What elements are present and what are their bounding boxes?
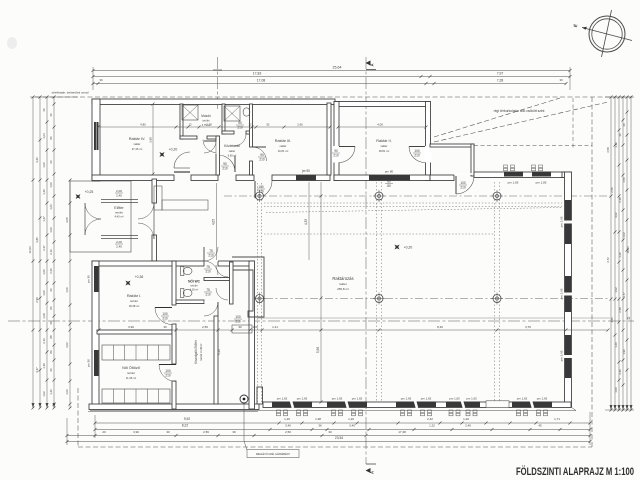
svg-text:7,28: 7,28 <box>497 79 504 83</box>
svg-text:FÖLDSZINTI ALAPRAJZ M 1:100: FÖLDSZINTI ALAPRAJZ M 1:100 <box>516 465 634 478</box>
svg-text:2,18: 2,18 <box>206 123 212 127</box>
svg-text:1,20: 1,20 <box>463 417 469 421</box>
svg-text:90: 90 <box>260 153 264 157</box>
svg-text:pm 1,65: pm 1,65 <box>332 397 343 401</box>
svg-text:18,38 m²: 18,38 m² <box>129 304 140 308</box>
svg-text:1,20: 1,20 <box>284 417 290 421</box>
svg-text:92: 92 <box>266 123 270 127</box>
svg-text:1,90: 1,90 <box>622 349 626 355</box>
svg-text:210: 210 <box>259 157 265 161</box>
svg-text:Mosdó: Mosdó <box>201 114 211 118</box>
svg-text:3,02: 3,02 <box>65 342 69 348</box>
svg-text:+0,20: +0,20 <box>404 246 413 250</box>
svg-text:5,26: 5,26 <box>217 349 221 355</box>
svg-text:90: 90 <box>334 149 338 153</box>
svg-text:10,81 m²: 10,81 m² <box>278 149 289 153</box>
svg-text:4,40 m²: 4,40 m² <box>114 215 123 219</box>
svg-text:2,48: 2,48 <box>618 307 622 313</box>
svg-text:1,50: 1,50 <box>622 177 626 183</box>
svg-text:pm 1,85: pm 1,85 <box>508 181 519 185</box>
svg-text:Női Öltöző: Női Öltöző <box>122 366 140 370</box>
svg-text:18,93: 18,93 <box>626 246 630 253</box>
svg-text:210: 210 <box>205 292 211 296</box>
svg-text:1,02: 1,02 <box>622 232 626 238</box>
svg-text:60: 60 <box>49 160 53 164</box>
svg-text:210: 210 <box>165 373 171 377</box>
svg-text:1,71: 1,71 <box>554 417 560 421</box>
svg-text:3,37: 3,37 <box>35 367 39 373</box>
svg-text:pm 1,65: pm 1,65 <box>449 397 460 401</box>
svg-text:Raktár II.: Raktár II. <box>376 139 391 143</box>
svg-text:7,97: 7,97 <box>497 72 504 76</box>
svg-text:90: 90 <box>223 162 227 166</box>
svg-text:terület 14,06 m²: terület 14,06 m² <box>200 343 203 360</box>
svg-text:1,02: 1,02 <box>614 287 618 293</box>
svg-text:terület: terület <box>127 371 135 375</box>
svg-text:265,8 m²: 265,8 m² <box>337 287 349 291</box>
svg-text:3,40: 3,40 <box>349 424 355 428</box>
svg-text:210: 210 <box>237 125 243 129</box>
svg-text:30: 30 <box>618 133 622 137</box>
svg-text:75: 75 <box>209 249 213 253</box>
svg-text:100: 100 <box>460 181 466 185</box>
svg-text:Előtér: Előtér <box>114 206 124 210</box>
svg-text:30: 30 <box>49 113 53 117</box>
svg-text:1,00: 1,00 <box>49 182 53 188</box>
svg-text:1,77: 1,77 <box>622 292 626 298</box>
svg-text:pm 3,65: pm 3,65 <box>560 288 564 299</box>
svg-text:4,35: 4,35 <box>304 219 308 225</box>
svg-text:2,30: 2,30 <box>49 268 53 274</box>
svg-text:A: A <box>370 471 375 474</box>
svg-text:régi térburkolaton álló csököt: régi térburkolaton álló csökött szint <box>494 109 545 113</box>
svg-text:4,05: 4,05 <box>65 217 69 223</box>
svg-text:210: 210 <box>460 185 466 189</box>
svg-text:210: 210 <box>222 166 228 170</box>
svg-text:100: 100 <box>235 315 241 319</box>
svg-text:80: 80 <box>49 136 53 140</box>
svg-text:2,66: 2,66 <box>297 123 303 127</box>
svg-text:30: 30 <box>559 78 563 82</box>
svg-text:terület: terület <box>115 211 123 215</box>
svg-text:NŐI WC: NŐI WC <box>188 279 201 284</box>
svg-text:2,16: 2,16 <box>42 338 46 344</box>
svg-text:210: 210 <box>333 153 339 157</box>
svg-text:4,02: 4,02 <box>614 212 618 218</box>
svg-text:3,70: 3,70 <box>525 325 531 329</box>
svg-text:80: 80 <box>387 180 391 184</box>
svg-text:75: 75 <box>206 265 210 269</box>
svg-text:30: 30 <box>232 430 236 434</box>
svg-text:1,00: 1,00 <box>49 227 53 233</box>
svg-text:1,98: 1,98 <box>315 417 321 421</box>
svg-text:1,00: 1,00 <box>42 290 46 296</box>
svg-text:MEGLÉVŐ ACÉL GÁZKÉMÉNY: MEGLÉVŐ ACÉL GÁZKÉMÉNY <box>256 453 291 456</box>
svg-text:3,90: 3,90 <box>128 325 134 329</box>
svg-text:30: 30 <box>163 325 167 329</box>
svg-text:2,37: 2,37 <box>42 245 46 251</box>
svg-text:pm 1,65: pm 1,65 <box>297 397 308 401</box>
svg-text:3,72: 3,72 <box>606 257 610 263</box>
svg-text:4,40: 4,40 <box>35 157 39 163</box>
svg-text:1,20: 1,20 <box>618 252 622 258</box>
svg-text:D: D <box>626 316 631 319</box>
svg-text:36: 36 <box>318 424 322 428</box>
svg-text:17,38: 17,38 <box>398 430 406 434</box>
svg-text:raktér: raktér <box>229 150 236 153</box>
svg-text:88: 88 <box>49 335 53 339</box>
svg-text:5,56: 5,56 <box>316 347 320 353</box>
svg-text:Raktározás: Raktározás <box>332 276 353 281</box>
svg-text:pm 90: pm 90 <box>87 275 91 283</box>
svg-text:1,00: 1,00 <box>42 162 46 168</box>
svg-text:1,22: 1,22 <box>429 424 435 428</box>
svg-text:2,16: 2,16 <box>49 249 53 255</box>
svg-text:1,42: 1,42 <box>49 389 53 395</box>
svg-text:25,64: 25,64 <box>333 66 342 70</box>
svg-text:210: 210 <box>205 269 211 273</box>
svg-text:2,40: 2,40 <box>618 369 622 375</box>
svg-text:pm 1,65: pm 1,65 <box>352 397 363 401</box>
svg-text:23,54: 23,54 <box>335 436 343 440</box>
svg-text:terület: terület <box>191 285 198 288</box>
svg-text:2,40: 2,40 <box>116 244 122 248</box>
svg-text:1,02: 1,02 <box>65 389 69 395</box>
svg-text:4,00: 4,00 <box>377 123 383 127</box>
svg-text:11,36 m²: 11,36 m² <box>126 376 137 380</box>
svg-text:pm 90: pm 90 <box>87 359 91 367</box>
svg-text:2,40: 2,40 <box>116 193 122 197</box>
svg-text:2,56: 2,56 <box>203 430 209 434</box>
svg-text:2,56: 2,56 <box>610 187 614 193</box>
svg-text:80: 80 <box>49 350 53 354</box>
svg-text:8,22: 8,22 <box>182 424 189 428</box>
svg-text:pm 3,65: pm 3,65 <box>560 350 564 361</box>
svg-text:45: 45 <box>538 424 542 428</box>
svg-text:1,50: 1,50 <box>610 317 614 323</box>
svg-text:pm 1,65: pm 1,65 <box>537 397 548 401</box>
svg-text:6,65 m²: 6,65 m² <box>228 155 237 158</box>
svg-text:18,81 m²: 18,81 m² <box>379 149 390 153</box>
svg-text:raktér: raktér <box>280 144 287 148</box>
svg-text:+0,36: +0,36 <box>135 275 144 279</box>
svg-text:3,80: 3,80 <box>149 137 153 143</box>
svg-text:8,40: 8,40 <box>437 325 443 329</box>
svg-text:100: 100 <box>414 149 420 153</box>
svg-text:1,00: 1,00 <box>42 269 46 275</box>
svg-text:100: 100 <box>165 369 171 373</box>
svg-text:raktér: raktér <box>134 142 141 146</box>
svg-text:1,00: 1,00 <box>65 287 69 293</box>
svg-text:Raktár IV.: Raktár IV. <box>129 137 146 141</box>
svg-text:100: 100 <box>258 185 264 189</box>
svg-text:Közlekedő: Közlekedő <box>224 144 240 148</box>
svg-text:Raktár I.: Raktár I. <box>127 294 141 298</box>
svg-text:30: 30 <box>99 78 103 82</box>
svg-text:pm 1,85: pm 1,85 <box>536 181 547 185</box>
svg-text:1,06: 1,06 <box>614 387 618 393</box>
svg-text:210: 210 <box>235 319 241 323</box>
svg-text:20: 20 <box>102 430 106 434</box>
svg-text:telekhatár, belterületi vonal: telekhatár, belterületi vonal <box>52 91 89 95</box>
svg-text:3,40: 3,40 <box>285 424 291 428</box>
svg-text:75: 75 <box>206 288 210 292</box>
svg-text:30: 30 <box>328 430 332 434</box>
svg-text:17,83: 17,83 <box>253 72 262 76</box>
svg-text:1,20: 1,20 <box>614 342 618 348</box>
svg-text:210: 210 <box>208 253 214 257</box>
svg-text:3,80: 3,80 <box>35 237 39 243</box>
svg-text:30: 30 <box>49 368 53 372</box>
svg-text:pm 1,65: pm 1,65 <box>401 397 412 401</box>
svg-text:210: 210 <box>162 316 168 320</box>
svg-text:pm 1,65: pm 1,65 <box>421 397 432 401</box>
svg-text:2,42: 2,42 <box>427 417 433 421</box>
svg-text:1,16: 1,16 <box>614 142 618 148</box>
svg-text:210: 210 <box>414 153 420 157</box>
svg-text:9,92: 9,92 <box>184 417 191 421</box>
svg-text:80: 80 <box>49 306 53 310</box>
svg-text:30: 30 <box>622 123 626 127</box>
svg-text:16,93: 16,93 <box>28 246 32 253</box>
svg-text:pm 80: pm 80 <box>385 170 394 174</box>
svg-text:3,58: 3,58 <box>606 147 610 153</box>
svg-text:1,38: 1,38 <box>42 363 46 369</box>
svg-text:2,56: 2,56 <box>202 325 208 329</box>
svg-text:Kiszolgáló Előtér: Kiszolgáló Előtér <box>194 339 198 364</box>
svg-text:2,00: 2,00 <box>116 240 122 244</box>
svg-text:2,38: 2,38 <box>618 197 622 203</box>
svg-text:1,08: 1,08 <box>42 313 46 319</box>
svg-text:4,38 m²: 4,38 m² <box>190 289 199 292</box>
svg-text:1,41: 1,41 <box>272 325 278 329</box>
svg-text:2,99: 2,99 <box>35 297 39 303</box>
svg-text:100: 100 <box>252 325 257 329</box>
svg-text:1,40: 1,40 <box>42 189 46 195</box>
svg-text:30: 30 <box>238 325 242 329</box>
svg-text:1,20: 1,20 <box>348 417 354 421</box>
svg-text:80: 80 <box>387 184 391 188</box>
svg-text:100: 100 <box>162 312 168 316</box>
svg-text:+0,25: +0,25 <box>85 190 94 194</box>
svg-text:Raktár III.: Raktár III. <box>275 139 291 143</box>
svg-text:30: 30 <box>49 321 53 325</box>
svg-text:12: 12 <box>248 123 252 127</box>
svg-text:jm 90: jm 90 <box>301 169 310 173</box>
svg-text:3,90: 3,90 <box>133 430 139 434</box>
svg-text:17,08: 17,08 <box>257 79 266 83</box>
svg-text:1,03: 1,03 <box>42 133 46 139</box>
svg-text:4,80: 4,80 <box>140 123 146 127</box>
svg-text:30: 30 <box>166 430 170 434</box>
svg-text:raktér: raktér <box>339 282 347 286</box>
svg-text:90: 90 <box>238 121 242 125</box>
svg-text:30: 30 <box>42 108 46 112</box>
svg-text:raktér: raktér <box>381 144 388 148</box>
svg-text:2,00: 2,00 <box>116 189 122 193</box>
svg-text:2,40: 2,40 <box>465 424 471 428</box>
svg-text:27,46 m²: 27,46 m² <box>132 147 143 151</box>
svg-text:pm 1,65: pm 1,65 <box>517 397 528 401</box>
svg-text:+0,20: +0,20 <box>169 148 178 152</box>
svg-text:pm 3,65: pm 3,65 <box>560 216 564 227</box>
svg-text:A: A <box>370 63 375 66</box>
svg-text:2,50: 2,50 <box>285 430 291 434</box>
svg-text:4,05: 4,05 <box>212 219 216 225</box>
svg-text:pm 1,65: pm 1,65 <box>277 397 288 401</box>
svg-text:terület: terület <box>130 299 138 303</box>
svg-text:1,00: 1,00 <box>49 204 53 210</box>
svg-text:1,47: 1,47 <box>42 216 46 222</box>
svg-text:pm 1,65: pm 1,65 <box>466 397 477 401</box>
svg-text:30: 30 <box>49 288 53 292</box>
svg-text:1,02: 1,02 <box>42 391 46 397</box>
